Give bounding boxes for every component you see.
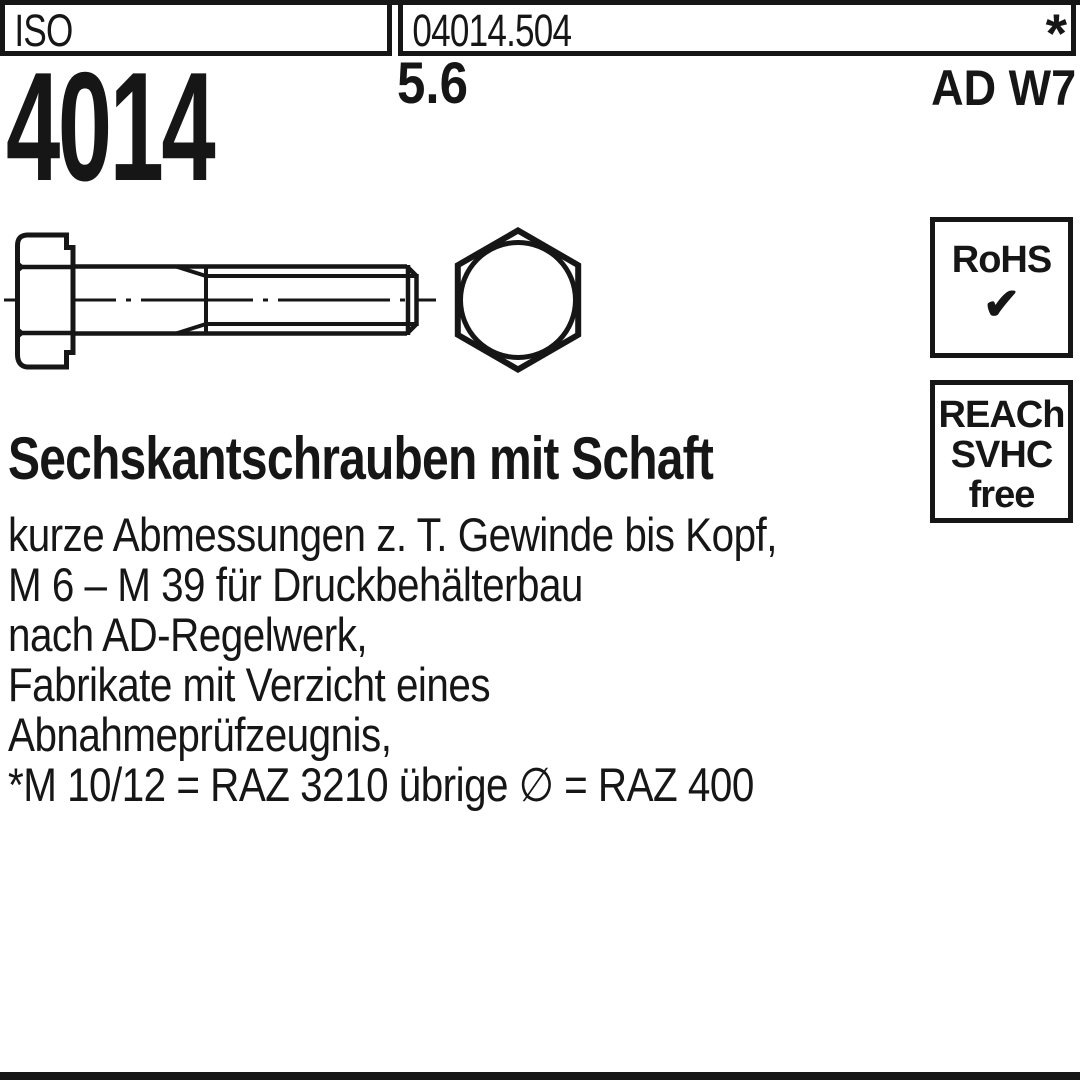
footnote-asterisk: *	[1046, 1, 1067, 65]
rohs-badge: RoHS ✔	[930, 217, 1073, 358]
product-title: Sechskantschrauben mit Schaft	[8, 429, 713, 489]
rohs-label: RoHS	[935, 222, 1068, 279]
bolt-side-view	[4, 235, 436, 367]
article-number: 04014.504	[403, 5, 571, 54]
description-line: Fabrikate mit Verzicht eines	[8, 660, 777, 710]
standard-number: 4014	[6, 49, 213, 204]
reach-line-3: free	[935, 475, 1068, 515]
hexagon-outline	[458, 231, 578, 370]
strength-class: 5.6	[397, 55, 468, 113]
check-icon: ✔	[935, 283, 1068, 327]
bolt-head-on-view	[458, 231, 578, 370]
hex-head-outline	[18, 235, 74, 367]
description-line: M 6 – M 39 für Druckbehälterbau	[8, 560, 777, 610]
article-number-box: 04014.504 *	[398, 0, 1076, 56]
product-description: kurze Abmessungen z. T. Gewinde bis Kopf…	[8, 510, 777, 810]
approval-marking: AD W7	[931, 63, 1076, 113]
description-line: Abnahmeprüfzeugnis,	[8, 710, 777, 760]
bottom-border	[0, 1072, 1080, 1080]
description-line: nach AD-Regelwerk,	[8, 610, 777, 660]
description-line: *M 10/12 = RAZ 3210 übrige ∅ = RAZ 400	[8, 760, 777, 810]
reach-badge: REACh SVHC free	[930, 380, 1073, 523]
reach-line-1: REACh	[935, 395, 1068, 435]
description-line: kurze Abmessungen z. T. Gewinde bis Kopf…	[8, 510, 777, 560]
bolt-technical-drawing	[0, 210, 585, 390]
product-datasheet: ISO 04014.504 * 4014 5.6 AD W7 RoHS ✔	[0, 0, 1080, 1080]
reach-line-2: SVHC	[935, 435, 1068, 475]
